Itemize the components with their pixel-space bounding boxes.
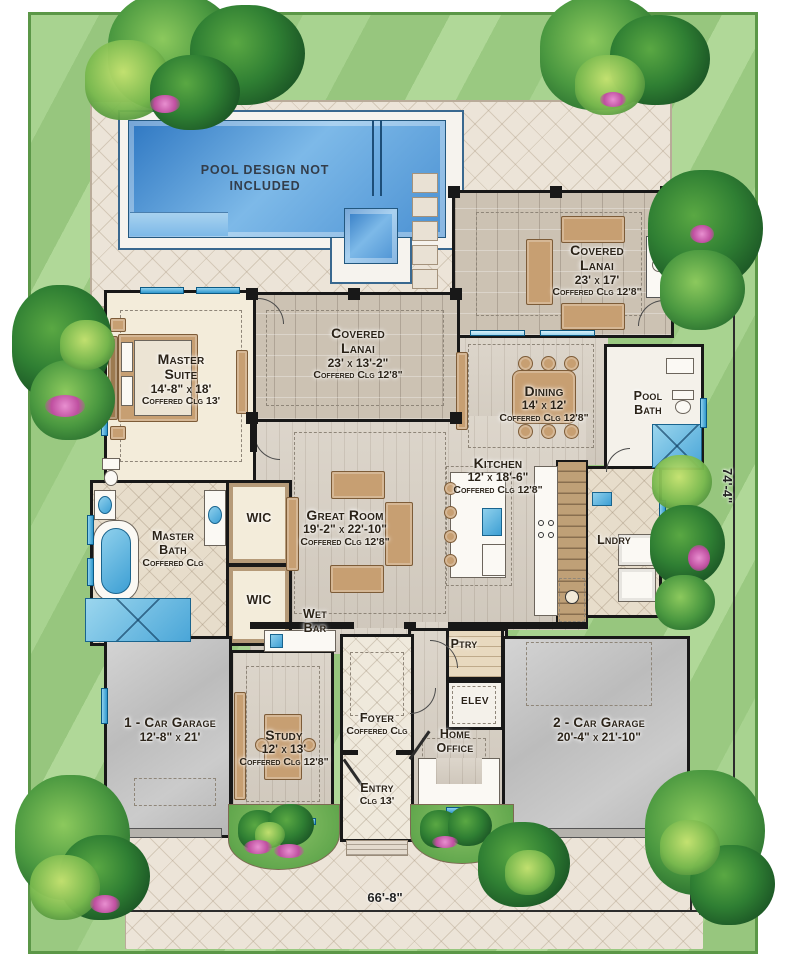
column <box>348 288 360 300</box>
flower-shrub <box>600 92 626 107</box>
label-covered-lanai-upper: Covered Lanai 23' x 17' Coffered Clg 12'… <box>540 243 654 299</box>
room-ceiling: Coffered Clg <box>343 726 411 738</box>
master-shower <box>85 598 191 642</box>
flower-shrub <box>688 545 710 571</box>
room-name: Lndry <box>586 534 642 548</box>
column <box>246 412 258 424</box>
range-burner <box>548 532 554 538</box>
wall <box>340 750 358 755</box>
entry-steps <box>346 840 408 856</box>
flower-shrub <box>274 844 304 858</box>
nightstand <box>110 426 126 440</box>
dimension-line-bottom <box>115 910 700 912</box>
deck-pad <box>412 173 438 193</box>
garage-1-door <box>128 828 222 838</box>
bar-stool <box>444 530 457 543</box>
label-study: Study 12' x 13' Coffered Clg 12'8" <box>236 728 332 768</box>
toilet-bowl <box>104 470 118 486</box>
label-garage-2: 2 - Car Garage 20'-4" x 21'-10" <box>536 716 662 744</box>
label-wic-upper: WIC <box>238 512 280 526</box>
room-ceiling: Coffered Clg <box>128 558 218 570</box>
range-burner <box>538 532 544 538</box>
window <box>87 558 94 586</box>
window <box>700 398 707 428</box>
room-ceiling: Coffered Clg 12'8" <box>306 370 410 382</box>
sun-shelf <box>130 212 228 236</box>
room-ceiling: Clg 13' <box>343 796 411 808</box>
room-ceiling: Coffered Clg 13' <box>122 396 240 408</box>
toilet <box>102 458 120 470</box>
room-name: Foyer <box>343 712 411 726</box>
lanai-sofa <box>561 216 625 243</box>
pool-lap-line <box>380 120 382 196</box>
column <box>550 186 562 198</box>
dining-chair <box>564 424 579 439</box>
pool-note: Pool Design Not Included <box>175 162 355 195</box>
room-dims: 12'-8" x 21' <box>114 731 226 744</box>
wall <box>448 622 588 629</box>
label-foyer: Foyer Coffered Clg <box>343 712 411 737</box>
range-burner <box>548 520 554 526</box>
room-dims: 12' x 13' <box>236 743 332 756</box>
dining-chair <box>518 356 533 371</box>
dining-chair <box>541 356 556 371</box>
wall <box>404 622 416 629</box>
label-wic-lower: WIC <box>238 594 280 608</box>
vanity-sink <box>208 506 222 524</box>
room-dims: 14'-8" x 18' <box>122 383 240 396</box>
wet-bar-sink <box>270 634 283 648</box>
label-dining: Dining 14' x 12' Coffered Clg 12'8" <box>478 384 610 424</box>
sofa <box>331 471 385 499</box>
vanity-sink <box>98 496 112 514</box>
room-name: Covered Lanai <box>557 243 637 274</box>
label-pool-bath: Pool Bath <box>616 390 680 418</box>
window <box>196 287 240 294</box>
pool-bath-sink <box>666 358 694 374</box>
bathtub-water <box>101 528 131 594</box>
room-name: ELEV <box>450 696 500 707</box>
room-name: WIC <box>238 594 280 608</box>
dryer <box>618 568 656 602</box>
island-sink <box>482 508 502 536</box>
room-ceiling: Coffered Clg 12'8" <box>478 413 610 425</box>
label-wet-bar: Wet Bar <box>292 608 338 636</box>
room-name: WIC <box>238 512 280 526</box>
room-name: 1 - Car Garage <box>114 716 226 731</box>
deck-pad <box>412 245 438 265</box>
office-desk-cutout <box>436 758 482 784</box>
room-dims: 14' x 12' <box>478 399 610 412</box>
label-elevator: ELEV <box>450 696 500 707</box>
room-name: Covered Lanai <box>318 326 398 357</box>
flower-shrub <box>90 895 120 913</box>
room-dims: 23' x 17' <box>540 274 654 287</box>
column <box>450 412 462 424</box>
bar-stool <box>444 554 457 567</box>
laundry-sink <box>592 492 612 506</box>
dining-chair <box>518 424 533 439</box>
room-name: Wet Bar <box>300 608 330 636</box>
room-ceiling: Coffered Clg 12'8" <box>278 537 412 549</box>
bar-stool <box>444 506 457 519</box>
label-pantry: Ptry <box>438 638 490 652</box>
room-name: Home Office <box>433 728 477 756</box>
room-name: Entry <box>343 782 411 796</box>
column <box>448 186 460 198</box>
flower-shrub <box>244 840 272 854</box>
label-master-suite: Master Suite 14'-8" x 18' Coffered Clg 1… <box>122 352 240 408</box>
sliding-door <box>470 330 525 336</box>
room-ceiling: Coffered Clg 12'8" <box>540 287 654 299</box>
deck-pad <box>412 197 438 217</box>
room-name: Master Bath <box>145 530 201 558</box>
flower-shrub <box>432 836 458 848</box>
label-covered-lanai-lower: Covered Lanai 23' x 13'-2" Coffered Clg … <box>306 326 410 382</box>
stair-landing-marker <box>565 590 579 604</box>
room-dims: 23' x 13'-2" <box>306 357 410 370</box>
sofa <box>330 565 384 593</box>
room-dims: 20'-4" x 21'-10" <box>536 731 662 744</box>
overall-depth-label: 74'-4" <box>720 468 735 503</box>
lanai-sofa <box>561 303 625 330</box>
garage-2-bay-outline <box>526 642 652 706</box>
label-great-room: Great Room 19'-2" x 22'-10" Coffered Clg… <box>278 508 412 548</box>
label-kitchen: Kitchen 12' x 18'-6" Coffered Clg 12'8" <box>430 456 566 496</box>
dining-chair <box>541 424 556 439</box>
flower-shrub <box>45 395 85 417</box>
window <box>87 515 94 545</box>
window <box>101 688 108 724</box>
label-laundry: Lndry <box>586 534 642 548</box>
island-extension <box>482 544 506 576</box>
nightstand <box>110 318 126 332</box>
deck-pad <box>412 221 438 241</box>
pool-lap-line <box>372 120 374 196</box>
flower-shrub <box>150 95 180 113</box>
range-burner <box>538 520 544 526</box>
room-dims: 12' x 18'-6" <box>430 471 566 484</box>
room-ceiling: Coffered Clg 12'8" <box>236 757 332 769</box>
room-name: Master Suite <box>146 352 216 383</box>
label-entry: Entry Clg 13' <box>343 782 411 807</box>
flower-shrub <box>690 225 714 243</box>
overall-width-label: 66'-8" <box>340 890 430 905</box>
sliding-door <box>540 330 595 336</box>
foyer-ceiling-outline <box>350 652 404 716</box>
column <box>246 288 258 300</box>
room-name: Ptry <box>438 638 490 652</box>
window <box>140 287 184 294</box>
room-name: Pool Bath <box>628 390 668 418</box>
deck-pad <box>412 269 438 289</box>
spa-water <box>344 208 398 264</box>
column <box>450 288 462 300</box>
garage-1-door-outline <box>134 778 216 806</box>
room-name: 2 - Car Garage <box>536 716 662 731</box>
room-dims: 19'-2" x 22'-10" <box>278 523 412 536</box>
dining-chair <box>564 356 579 371</box>
room-ceiling: Coffered Clg 12'8" <box>430 485 566 497</box>
label-master-bath: Master Bath Coffered Clg <box>128 530 218 569</box>
label-home-office: Home Office <box>422 728 488 756</box>
floor-plan-canvas: Pool Design Not Included <box>0 0 800 971</box>
label-garage-1: 1 - Car Garage 12'-8" x 21' <box>114 716 226 744</box>
